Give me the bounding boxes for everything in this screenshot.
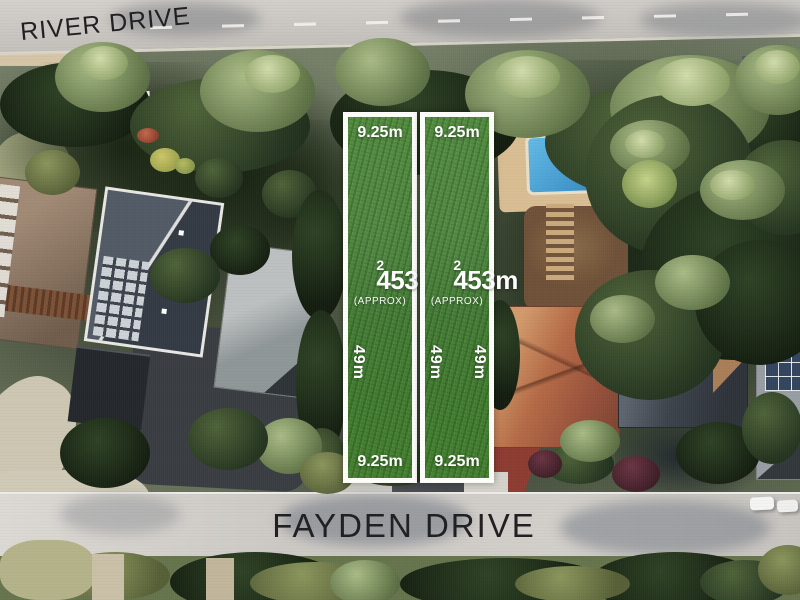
grass-patch bbox=[0, 540, 95, 600]
tree bbox=[515, 566, 630, 600]
shrub bbox=[188, 408, 268, 470]
lot-1-area-label: 453m2 (APPROX) bbox=[348, 267, 412, 307]
tree bbox=[245, 55, 300, 93]
path bbox=[92, 554, 124, 600]
lot-2-depth-right-label: 49m bbox=[470, 345, 488, 380]
tree bbox=[655, 58, 730, 106]
tree bbox=[335, 38, 430, 106]
roof-vent bbox=[161, 308, 167, 314]
tree bbox=[495, 56, 560, 98]
shrub bbox=[150, 248, 220, 303]
lot-2-area-value: 453m bbox=[453, 267, 518, 293]
lot-1-frontage-top-label: 9.25m bbox=[348, 124, 412, 142]
maroon-shrub bbox=[612, 456, 660, 492]
tree bbox=[710, 170, 755, 200]
lot-2-frontage-top-label: 9.25m bbox=[425, 124, 489, 142]
tree-shadow bbox=[640, 2, 800, 38]
shrub bbox=[195, 158, 243, 198]
lot-1-area-exponent: 2 bbox=[376, 257, 383, 273]
hedge bbox=[292, 190, 347, 320]
roof-vent bbox=[178, 230, 184, 236]
lot-2-frontage-bottom-label: 9.25m bbox=[425, 453, 489, 471]
tree bbox=[742, 392, 800, 464]
shrub bbox=[25, 150, 80, 195]
lot-1-depth-label: 49m bbox=[349, 345, 367, 380]
house-roof-left bbox=[0, 176, 97, 349]
garden-steps bbox=[546, 204, 574, 280]
lot-2-area-qualifier: (APPROX) bbox=[425, 296, 489, 307]
shrub bbox=[60, 418, 150, 488]
lot-1: 9.25m 453m2 (APPROX) 49m 9.25m bbox=[343, 112, 417, 483]
lot-2: 9.25m 453m2 (APPROX) 49m 49m 9.25m bbox=[420, 112, 494, 483]
lot-2-area-label: 453m2 (APPROX) bbox=[425, 267, 489, 307]
lot-1-grass: 9.25m 453m2 (APPROX) 49m 9.25m bbox=[348, 117, 412, 478]
street-label-fayden-drive: FAYDEN DRIVE bbox=[4, 507, 800, 545]
aerial-photo: 9.25m 453m2 (APPROX) 49m 9.25m 9.25m 453… bbox=[0, 0, 800, 600]
path bbox=[206, 558, 234, 600]
shrub bbox=[560, 420, 620, 462]
red-shrub bbox=[137, 128, 159, 143]
lot-1-frontage-bottom-label: 9.25m bbox=[348, 453, 412, 471]
shrub bbox=[210, 225, 270, 275]
lot-2-depth-left-label: 49m bbox=[426, 345, 444, 380]
lot-2-area-exponent: 2 bbox=[453, 257, 460, 273]
tree bbox=[655, 255, 730, 310]
tree bbox=[330, 560, 400, 600]
tree bbox=[80, 46, 128, 80]
yellow-shrub bbox=[175, 158, 195, 174]
tree bbox=[590, 295, 655, 343]
tree bbox=[755, 50, 800, 84]
lot-2-grass: 9.25m 453m2 (APPROX) 49m 49m 9.25m bbox=[425, 117, 489, 478]
solar-panels bbox=[93, 256, 150, 342]
maroon-shrub bbox=[528, 450, 562, 478]
palm-tree bbox=[622, 160, 677, 208]
tree bbox=[625, 130, 665, 158]
lot-1-area-qualifier: (APPROX) bbox=[348, 296, 412, 307]
